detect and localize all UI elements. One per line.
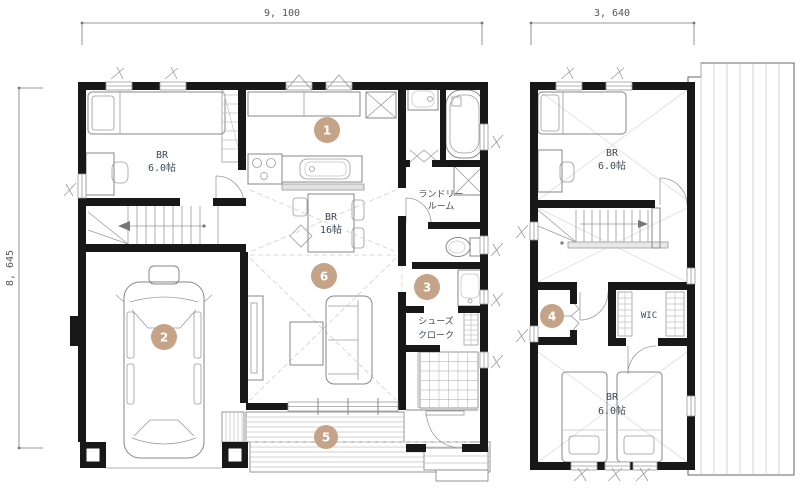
marker-2: 2 (151, 324, 177, 350)
desk-icon (86, 153, 128, 195)
bed-icon (88, 92, 225, 134)
marker-4: 4 (540, 304, 564, 328)
room-label-ldk-area: 16帖 (320, 223, 342, 236)
room-label-shoe-closet-1: シューズ (418, 315, 454, 327)
marker-3: 3 (414, 274, 440, 300)
dim-label-plan1-width: 9, 100 (264, 8, 300, 19)
room-label-bedroom-2f-bottom-name: BR (606, 392, 619, 403)
room-label-bedroom-2f-top-name: BR (606, 148, 619, 159)
marker-1: 1 (314, 117, 340, 143)
bed-icon (538, 92, 626, 134)
wic-hatch-right (666, 292, 684, 336)
stove-icon (248, 154, 282, 184)
roof-panel (688, 63, 794, 475)
garage-pillars (80, 442, 248, 468)
svg-text:1: 1 (323, 124, 331, 138)
floor-plan-canvas: 9, 100 3, 640 8, 645 (0, 0, 800, 500)
dim-label-plan2-width: 3, 640 (594, 8, 630, 19)
markers: 1 2 3 4 5 6 (151, 117, 564, 449)
living-furniture (247, 296, 372, 384)
svg-text:3: 3 (423, 281, 431, 295)
bed-icon (617, 372, 662, 462)
room-label-bedroom-2f-bottom-area: 6.0帖 (598, 404, 626, 417)
dim-plan1-width: 9, 100 (81, 8, 484, 45)
closet-2f (556, 292, 608, 330)
car-icon (116, 266, 212, 458)
entry-porch (424, 448, 488, 481)
dim-label-plan1-height: 8, 645 (5, 250, 16, 286)
room-label-bedroom-1f-area: 6.0帖 (148, 161, 176, 174)
floor-plan-2f: BR 6.0帖 WIC BR 6.0帖 (516, 63, 794, 481)
entry-tile-floor (406, 352, 478, 410)
coffee-table-icon (290, 322, 323, 365)
marker-6: 6 (311, 263, 337, 289)
toilet-icon (446, 238, 482, 257)
bedroom-2f-bottom-furniture (562, 372, 662, 462)
svg-text:2: 2 (160, 331, 168, 345)
bedroom-1f-furniture (86, 86, 244, 204)
dim-plan1-height: 8, 645 (5, 87, 43, 450)
bathtub-icon (446, 90, 483, 158)
floor-plan-1f: BR 6.0帖 BR 16帖 ランドリー ルーム シューズ クローク (64, 67, 503, 481)
room-label-shoe-closet-2: クローク (418, 330, 454, 341)
room-label-wic: WIC (641, 311, 657, 321)
shoe-closet-hatch (464, 310, 478, 345)
svg-text:5: 5 (322, 431, 330, 445)
dim-plan2-width: 3, 640 (530, 8, 696, 45)
washbasin-icon (408, 88, 438, 110)
kitchen-island (282, 156, 364, 190)
door-arc (660, 178, 687, 205)
floor-plan-page: 9, 100 3, 640 8, 645 (0, 0, 800, 500)
garage (106, 266, 222, 468)
hall-door-arc (580, 292, 608, 320)
room-label-laundry-2: ルーム (428, 201, 455, 212)
room-label-ldk-name: BR (325, 212, 338, 223)
marker-5: 5 (314, 425, 338, 449)
svg-text:6: 6 (320, 270, 328, 284)
bed-icon (562, 372, 607, 462)
room-label-laundry-1: ランドリー (418, 189, 463, 200)
staircase-2f (538, 208, 668, 248)
tv-stand-icon (247, 296, 263, 380)
room-label-bedroom-1f-name: BR (156, 150, 169, 161)
wic-hatch-left (618, 292, 632, 336)
room-label-bedroom-2f-top-area: 6.0帖 (598, 159, 626, 172)
sofa-icon (326, 296, 372, 384)
wic-door-arc (628, 346, 656, 374)
staircase-1f (88, 206, 218, 244)
ldk-guides (250, 190, 396, 400)
vanity-icon (458, 270, 482, 306)
svg-text:4: 4 (548, 310, 556, 324)
desk-icon (538, 150, 574, 192)
pantry-box (366, 92, 396, 118)
